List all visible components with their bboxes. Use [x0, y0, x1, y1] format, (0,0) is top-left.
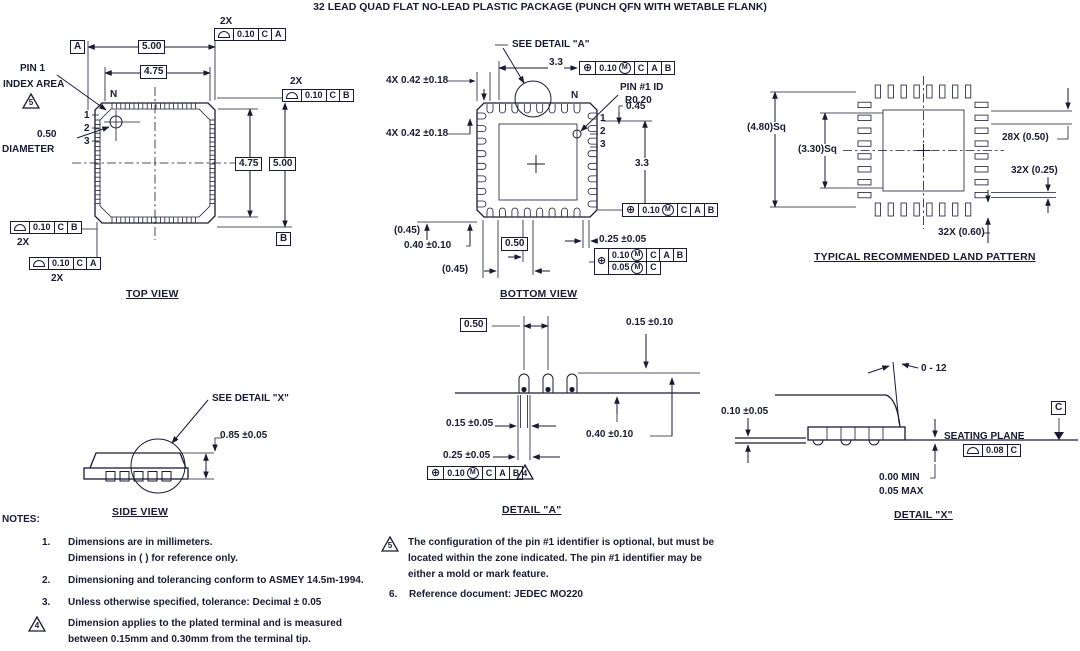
pin-number: 2 — [84, 123, 90, 135]
ref-045-bottom: (0.45) — [442, 264, 468, 276]
fcf-cell: 0.10M — [595, 62, 634, 74]
fcf-cell: C — [634, 62, 648, 74]
datum-c-label: C — [1051, 401, 1066, 415]
dim-max: 0.05 MAX — [879, 486, 923, 498]
profile-of-surface-icon — [964, 445, 982, 456]
note-text: Reference document: JEDEC MO220 — [409, 589, 583, 601]
fcf-cell: 0.10 — [29, 222, 54, 233]
profile-of-surface-icon — [215, 29, 233, 40]
note-text: located within the zone indicated. The p… — [408, 553, 702, 565]
detail-a-pitch: 0.50 — [460, 318, 487, 332]
position-icon: ⊕ — [594, 248, 609, 275]
note-flag-5-notes: 5 — [381, 536, 399, 556]
land-pattern-drawing — [770, 76, 1072, 243]
fcf-cell: B — [339, 90, 353, 101]
fcf-position-detail-a: ⊕0.10MCAB — [427, 466, 523, 480]
fcf-cell: A — [86, 258, 100, 269]
note-number: 1. — [42, 537, 50, 549]
dim-package-height: 0.85 ±0.05 — [220, 430, 267, 442]
dim-lead-length: 0.40 ±0.10 — [404, 240, 451, 252]
fcf-cell: A — [495, 467, 509, 479]
mmc-icon: M — [631, 249, 643, 261]
top-fcf-right-qty: 2X — [290, 76, 302, 88]
land-pattern-title: TYPICAL RECOMMENDED LAND PATTERN — [814, 251, 1036, 264]
note-flag-4-notes: 4 — [28, 616, 46, 636]
fcf-cell: B — [67, 222, 81, 233]
side-view-title: SIDE VIEW — [112, 506, 168, 519]
fcf-cell: A — [271, 29, 285, 40]
pin-number: 1 — [84, 110, 90, 122]
fcf-cell: 0.10M — [638, 204, 677, 216]
note-text: Dimensions in ( ) for reference only. — [68, 553, 238, 565]
fcf-cell: 0.05M — [608, 261, 648, 275]
note-text: Unless otherwise specified, tolerance: D… — [68, 597, 321, 609]
note-text: either a mold or mark feature. — [408, 569, 549, 581]
fcf-cell: B — [661, 62, 675, 74]
fcf-profile-top: 0.10CA — [214, 28, 286, 42]
detail-x-drawing — [735, 362, 1078, 478]
top-view-title: TOP VIEW — [126, 288, 179, 301]
fcf-cell: 0.08 — [982, 445, 1007, 456]
top-fcf-top-qty: 2X — [220, 16, 232, 28]
fcf-cell: C — [258, 29, 272, 40]
note-text: between 0.15mm and 0.30mm from the termi… — [68, 634, 311, 646]
dim-height-outer: 5.00 — [269, 157, 296, 171]
notes-header: NOTES: — [2, 514, 40, 526]
diameter-value: 0.50 — [37, 129, 56, 141]
pin1-callout-line2: INDEX AREA — [3, 79, 64, 91]
fcf-cell: 0.10 — [48, 258, 73, 269]
fcf-cell: B — [704, 204, 718, 216]
pin-number: 3 — [84, 136, 90, 148]
dim-pad-width: 32X (0.25) — [1010, 165, 1059, 177]
detail-x-angle: 0 - 12 — [921, 363, 947, 375]
see-detail-a: SEE DETAIL "A" — [512, 39, 589, 51]
top-view-drawing — [57, 41, 292, 258]
note-text: Dimension applies to the plated terminal… — [68, 618, 342, 630]
fcf-cell: B — [673, 248, 688, 262]
top-fcf-bottom-qty: 2X — [51, 273, 63, 285]
detail-a-outer-width: 0.25 ±0.05 — [443, 450, 490, 462]
fcf-position-top: ⊕0.10MCAB — [579, 61, 675, 75]
dim-33-right: 3.3 — [634, 158, 650, 170]
dim-corner-top: 4X 0.42 ±0.18 — [386, 75, 448, 87]
fcf-cell: A — [690, 204, 704, 216]
fcf-position-right: ⊕0.10MCAB — [622, 203, 718, 217]
detail-a-title: DETAIL "A" — [502, 504, 561, 517]
fcf-cell: C — [482, 467, 496, 479]
fcf-cell: C — [54, 222, 68, 233]
dim-pad-pitch: 28X (0.50) — [1002, 132, 1049, 144]
pin-number: 1 — [600, 113, 606, 125]
fcf-profile-right: 0.10CB — [282, 89, 354, 103]
fcf-cell: 0.10M — [443, 467, 482, 479]
fcf-cell: C — [73, 258, 87, 269]
detail-x-title: DETAIL "X" — [894, 509, 953, 522]
pin1-callout-line1: PIN 1 — [20, 63, 45, 75]
seating-plane-label: SEATING PLANE — [944, 431, 1024, 443]
profile-of-surface-icon — [283, 90, 301, 101]
fcf-cell: 0.10 — [301, 90, 326, 101]
fcf-cell: A — [647, 62, 661, 74]
dim-pitch-boxed: 0.50 — [501, 237, 528, 251]
detail-a-standoff: 0.15 ±0.10 — [626, 317, 673, 329]
fcf-profile-seating: 0.08C — [963, 444, 1021, 458]
dim-min: 0.00 MIN — [879, 472, 920, 484]
pin-number: 3 — [600, 139, 606, 151]
note-flag-4: 4 — [516, 464, 534, 484]
note-flag-5: 5 — [22, 93, 40, 113]
fcf-cell: C — [646, 261, 661, 275]
detail-a-lead: 0.40 ±0.10 — [586, 429, 633, 441]
mmc-icon: M — [467, 467, 479, 479]
fcf-stacked: ⊕0.10MCAB0.05MC — [594, 248, 687, 275]
fcf-profile-left: 0.10CB — [10, 221, 82, 235]
note-text: The configuration of the pin #1 identifi… — [408, 537, 714, 549]
position-icon: ⊕ — [580, 62, 595, 74]
drawing-sheet: 32 LEAD QUAD FLAT NO-LEAD PLASTIC PACKAG… — [0, 0, 1080, 651]
note-number: 3. — [42, 597, 50, 609]
note-text: Dimensions are in millimeters. — [68, 537, 213, 549]
ref-inner-square: (3.30)Sq — [797, 144, 838, 156]
dim-045: 0.45 — [626, 101, 645, 113]
profile-of-surface-icon — [30, 258, 48, 269]
position-icon: ⊕ — [623, 204, 638, 216]
top-fcf-left-qty: 2X — [17, 237, 29, 249]
pin-number: 2 — [600, 126, 606, 138]
bottom-view-title: BOTTOM VIEW — [500, 288, 577, 301]
side-view-drawing — [84, 400, 222, 493]
see-detail-x: SEE DETAIL "X" — [212, 393, 289, 405]
note-text: Dimensioning and tolerancing conform to … — [68, 575, 364, 587]
pin1-id-line1: PIN #1 ID — [620, 82, 663, 94]
pin-count-label: N — [110, 89, 117, 101]
datum-b-label: B — [276, 232, 291, 246]
dim-pad-length: 32X (0.60) — [938, 227, 985, 239]
fcf-cell: C — [326, 90, 340, 101]
ref-045-left: (0.45) — [394, 225, 420, 237]
dim-width-outer: 5.00 — [138, 40, 165, 54]
detail-a-inner-width: 0.15 ±0.05 — [446, 418, 493, 430]
note-number: 6. — [389, 589, 397, 601]
dim-height-inner: 4.75 — [235, 157, 262, 171]
detail-x-standoff: 0.10 ±0.05 — [721, 406, 768, 418]
dim-width-inner: 4.75 — [140, 65, 167, 79]
ref-outer-square: (4.80)Sq — [746, 122, 787, 134]
dim-corner-left: 4X 0.42 ±0.18 — [386, 128, 448, 140]
detail-a-drawing — [455, 316, 700, 460]
dim-33-top: 3.3 — [548, 57, 564, 69]
fcf-cell: 0.10 — [233, 29, 258, 40]
profile-of-surface-icon — [11, 222, 29, 233]
fcf-cell: C — [677, 204, 691, 216]
note-number: 2. — [42, 575, 50, 587]
mmc-icon: M — [662, 204, 674, 216]
fcf-cell: C — [1007, 445, 1021, 456]
diameter-word: DIAMETER — [2, 144, 54, 156]
fcf-profile-bottom: 0.10CA — [29, 257, 101, 271]
mmc-icon: M — [619, 62, 631, 74]
pin-count-label: N — [571, 90, 578, 102]
dim-lead-width: 0.25 ±0.05 — [598, 234, 647, 246]
mmc-icon: M — [631, 262, 643, 274]
datum-a-label: A — [70, 40, 85, 54]
position-icon: ⊕ — [428, 467, 443, 479]
